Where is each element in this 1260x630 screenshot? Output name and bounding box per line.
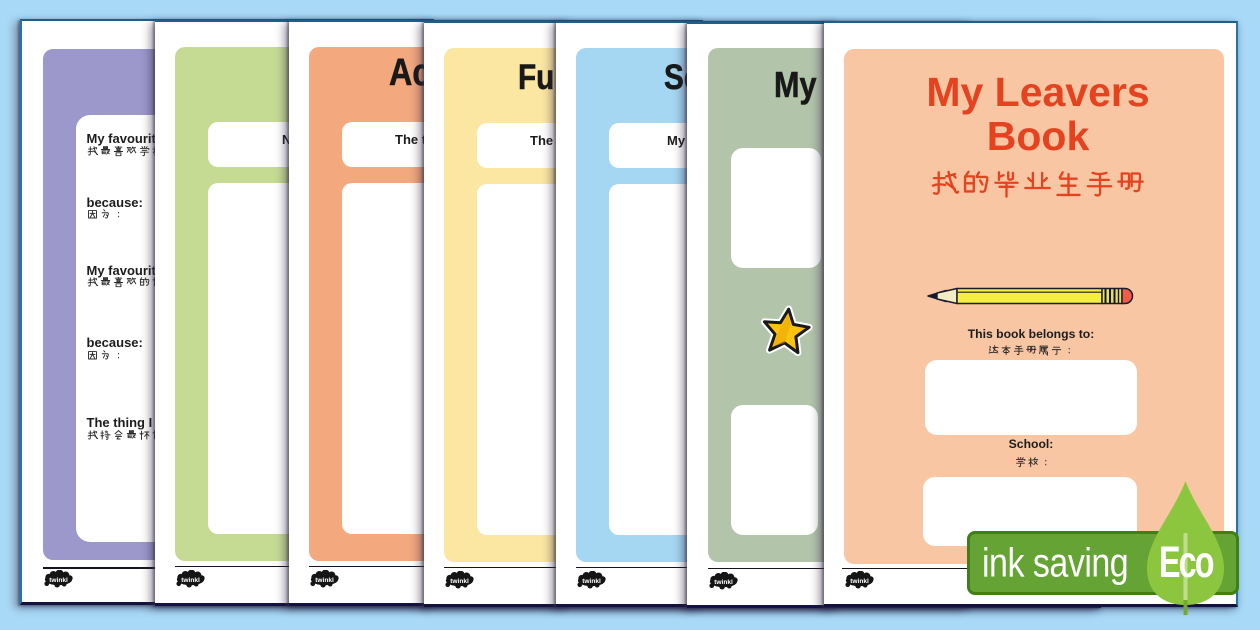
svg-text:twinkl: twinkl — [714, 578, 733, 585]
svg-text:twinkl: twinkl — [850, 578, 869, 585]
svg-text:twinkl: twinkl — [315, 577, 334, 584]
svg-text:twinkl: twinkl — [450, 578, 469, 585]
svg-text:twinkl: twinkl — [181, 577, 200, 584]
svg-text:twinkl: twinkl — [49, 577, 68, 584]
svg-text:twinkl: twinkl — [582, 578, 601, 585]
